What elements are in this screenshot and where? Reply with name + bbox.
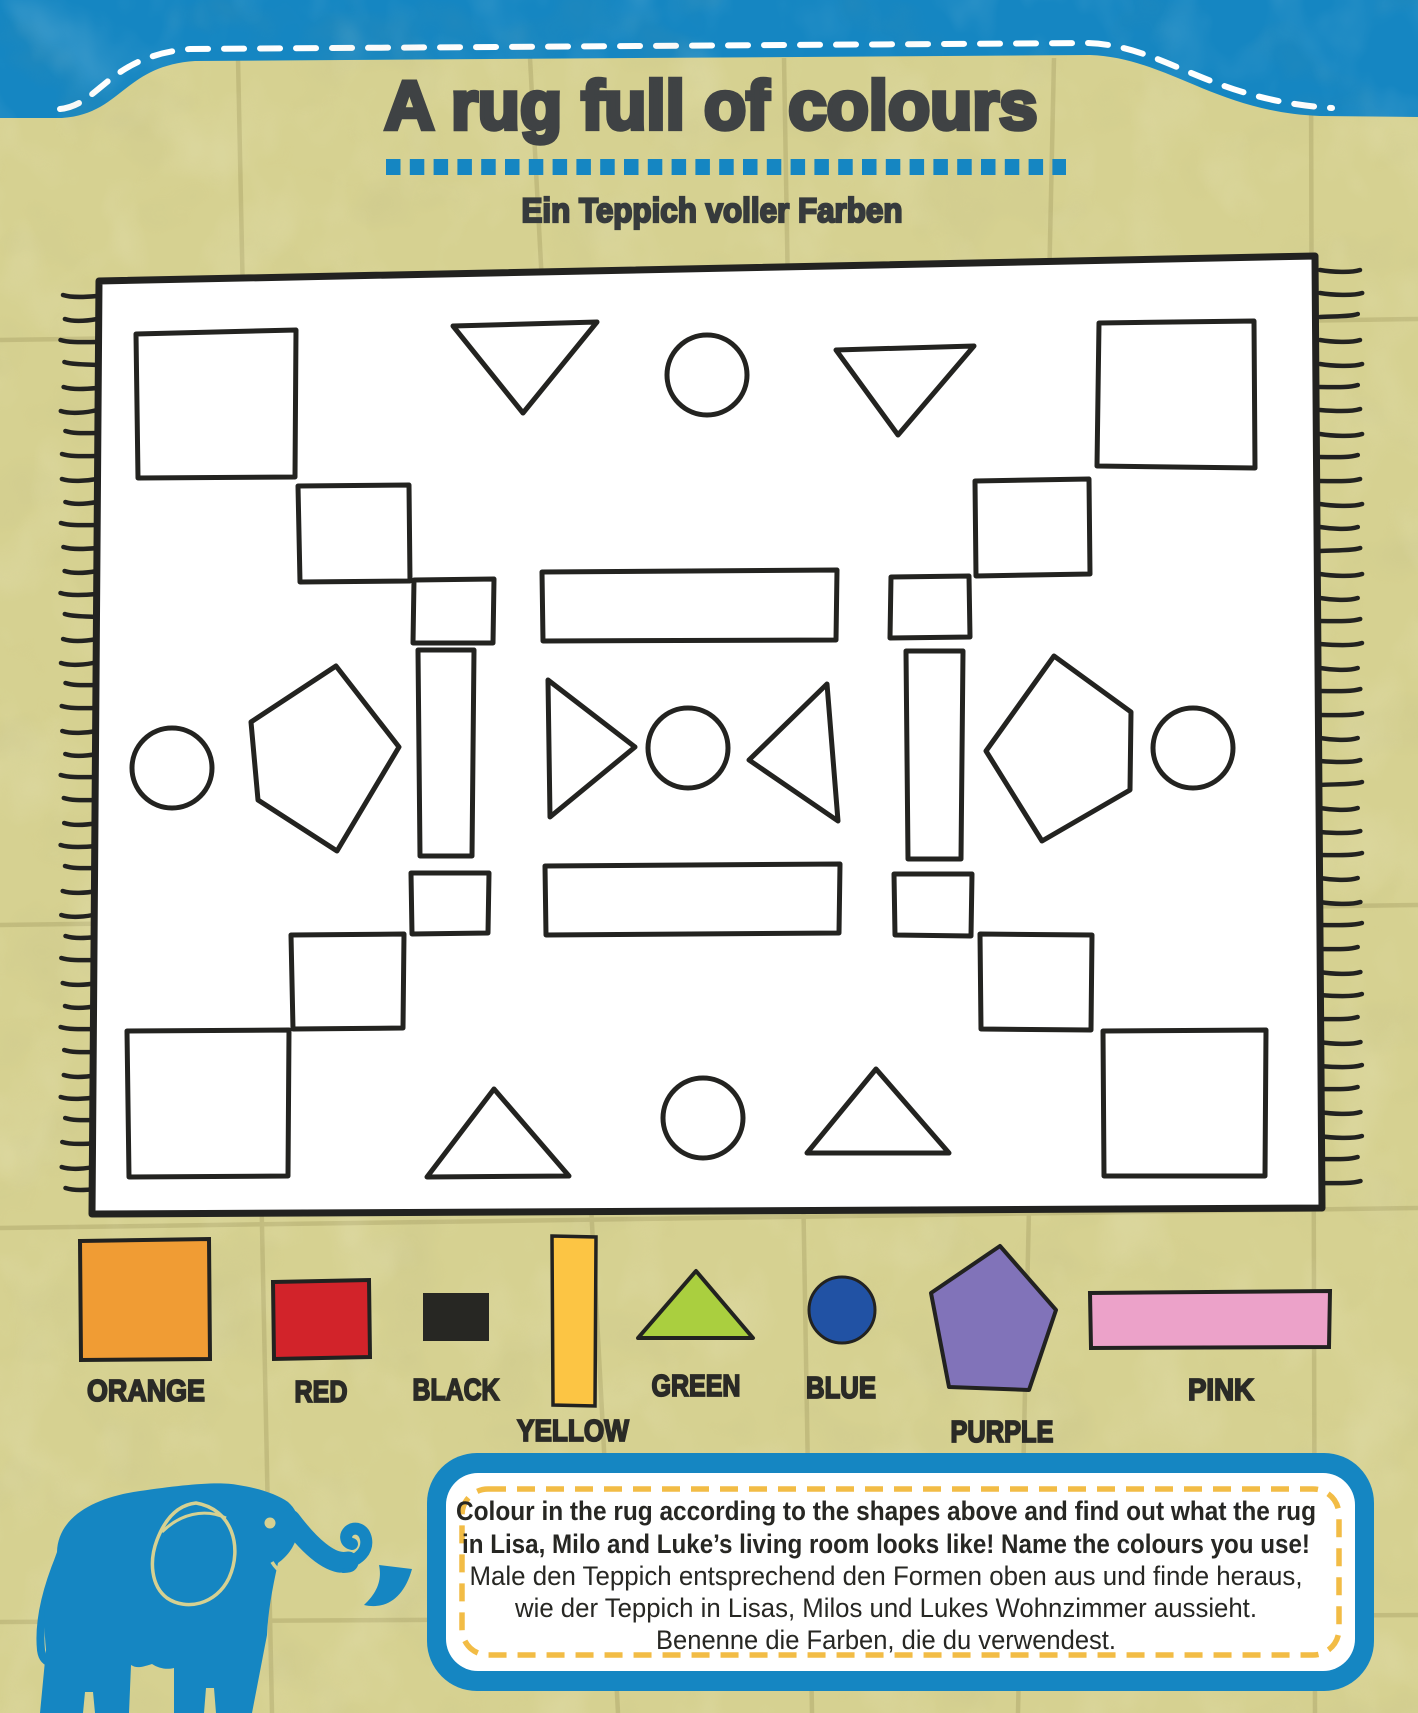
svg-text:wie der Teppich in Lisas, Milo: wie der Teppich in Lisas, Milos und Luke…	[514, 1593, 1257, 1623]
svg-text:in Lisa, Milo and Luke’s livin: in Lisa, Milo and Luke’s living room loo…	[462, 1529, 1310, 1559]
svg-text:YELLOW: YELLOW	[517, 1413, 630, 1448]
svg-text:Ein Teppich voller Farben: Ein Teppich voller Farben	[522, 192, 903, 230]
svg-text:PINK: PINK	[1188, 1372, 1255, 1407]
svg-text:PURPLE: PURPLE	[951, 1414, 1054, 1449]
svg-text:Male den Teppich entsprechend: Male den Teppich entsprechend den Formen…	[470, 1561, 1303, 1591]
svg-text:RED: RED	[295, 1374, 348, 1409]
svg-text:Colour in the rug according to: Colour in the rug according to the shape…	[456, 1496, 1316, 1526]
svg-text:ORANGE: ORANGE	[87, 1373, 205, 1408]
svg-text:GREEN: GREEN	[652, 1368, 741, 1403]
svg-text:BLUE: BLUE	[806, 1370, 876, 1405]
svg-text:BLACK: BLACK	[413, 1372, 500, 1407]
svg-text:Benenne die Farben, die du ver: Benenne die Farben, die du verwendest.	[656, 1625, 1116, 1655]
svg-text:A rug full of colours: A rug full of colours	[385, 67, 1038, 144]
